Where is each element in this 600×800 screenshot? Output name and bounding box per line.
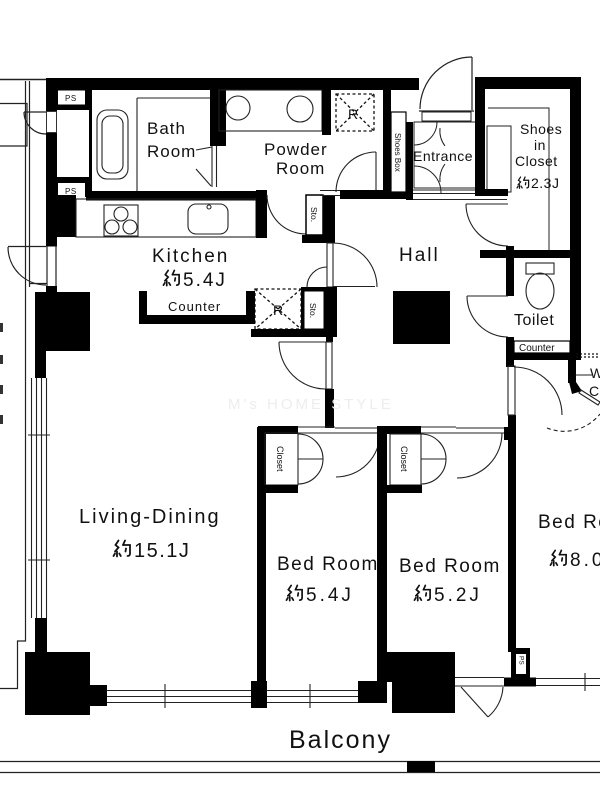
svg-text:Toilet: Toilet [514,312,554,329]
svg-text:Bed Room: Bed Room [399,556,501,577]
svg-text:8.0: 8.0 [570,550,600,571]
svg-text:Counter: Counter [168,299,221,314]
svg-text:Closet: Closet [275,446,285,472]
svg-text:PS: PS [65,94,77,103]
svg-text:Powder: Powder [264,140,328,159]
svg-text:in: in [534,137,546,153]
svg-text:Bath: Bath [147,119,186,138]
svg-text:5.2J: 5.2J [434,585,482,606]
svg-text:W: W [590,365,600,381]
svg-text:Shoes Box: Shoes Box [393,133,402,172]
svg-text:Kitchen: Kitchen [152,246,229,267]
svg-text:Room: Room [276,159,325,178]
svg-text:Balcony: Balcony [289,726,392,754]
svg-text:2.3J: 2.3J [531,175,559,191]
svg-text:Sto.: Sto. [308,303,318,318]
svg-text:Entrance: Entrance [413,148,473,164]
svg-text:Living-Dining: Living-Dining [79,506,221,528]
svg-text:Closet: Closet [399,446,409,472]
svg-text:PS: PS [518,656,525,665]
svg-text:Shoes: Shoes [520,121,562,137]
svg-text:R: R [273,302,283,318]
svg-text:Counter: Counter [519,343,555,354]
svg-text:Bed Ro: Bed Ro [538,512,600,533]
svg-text:Sto.: Sto. [309,207,319,222]
svg-text:R: R [348,106,358,122]
svg-text:5.4J: 5.4J [306,585,354,606]
svg-text:5.4J: 5.4J [183,270,227,291]
svg-text:Hall: Hall [399,245,440,266]
svg-text:Closet: Closet [515,153,558,169]
svg-text:PS: PS [65,187,77,196]
svg-text:M's HOME STYLE: M's HOME STYLE [228,396,394,413]
svg-text:15.1J: 15.1J [134,540,190,562]
svg-text:Bed Room: Bed Room [277,554,379,575]
svg-text:Room: Room [147,142,196,161]
